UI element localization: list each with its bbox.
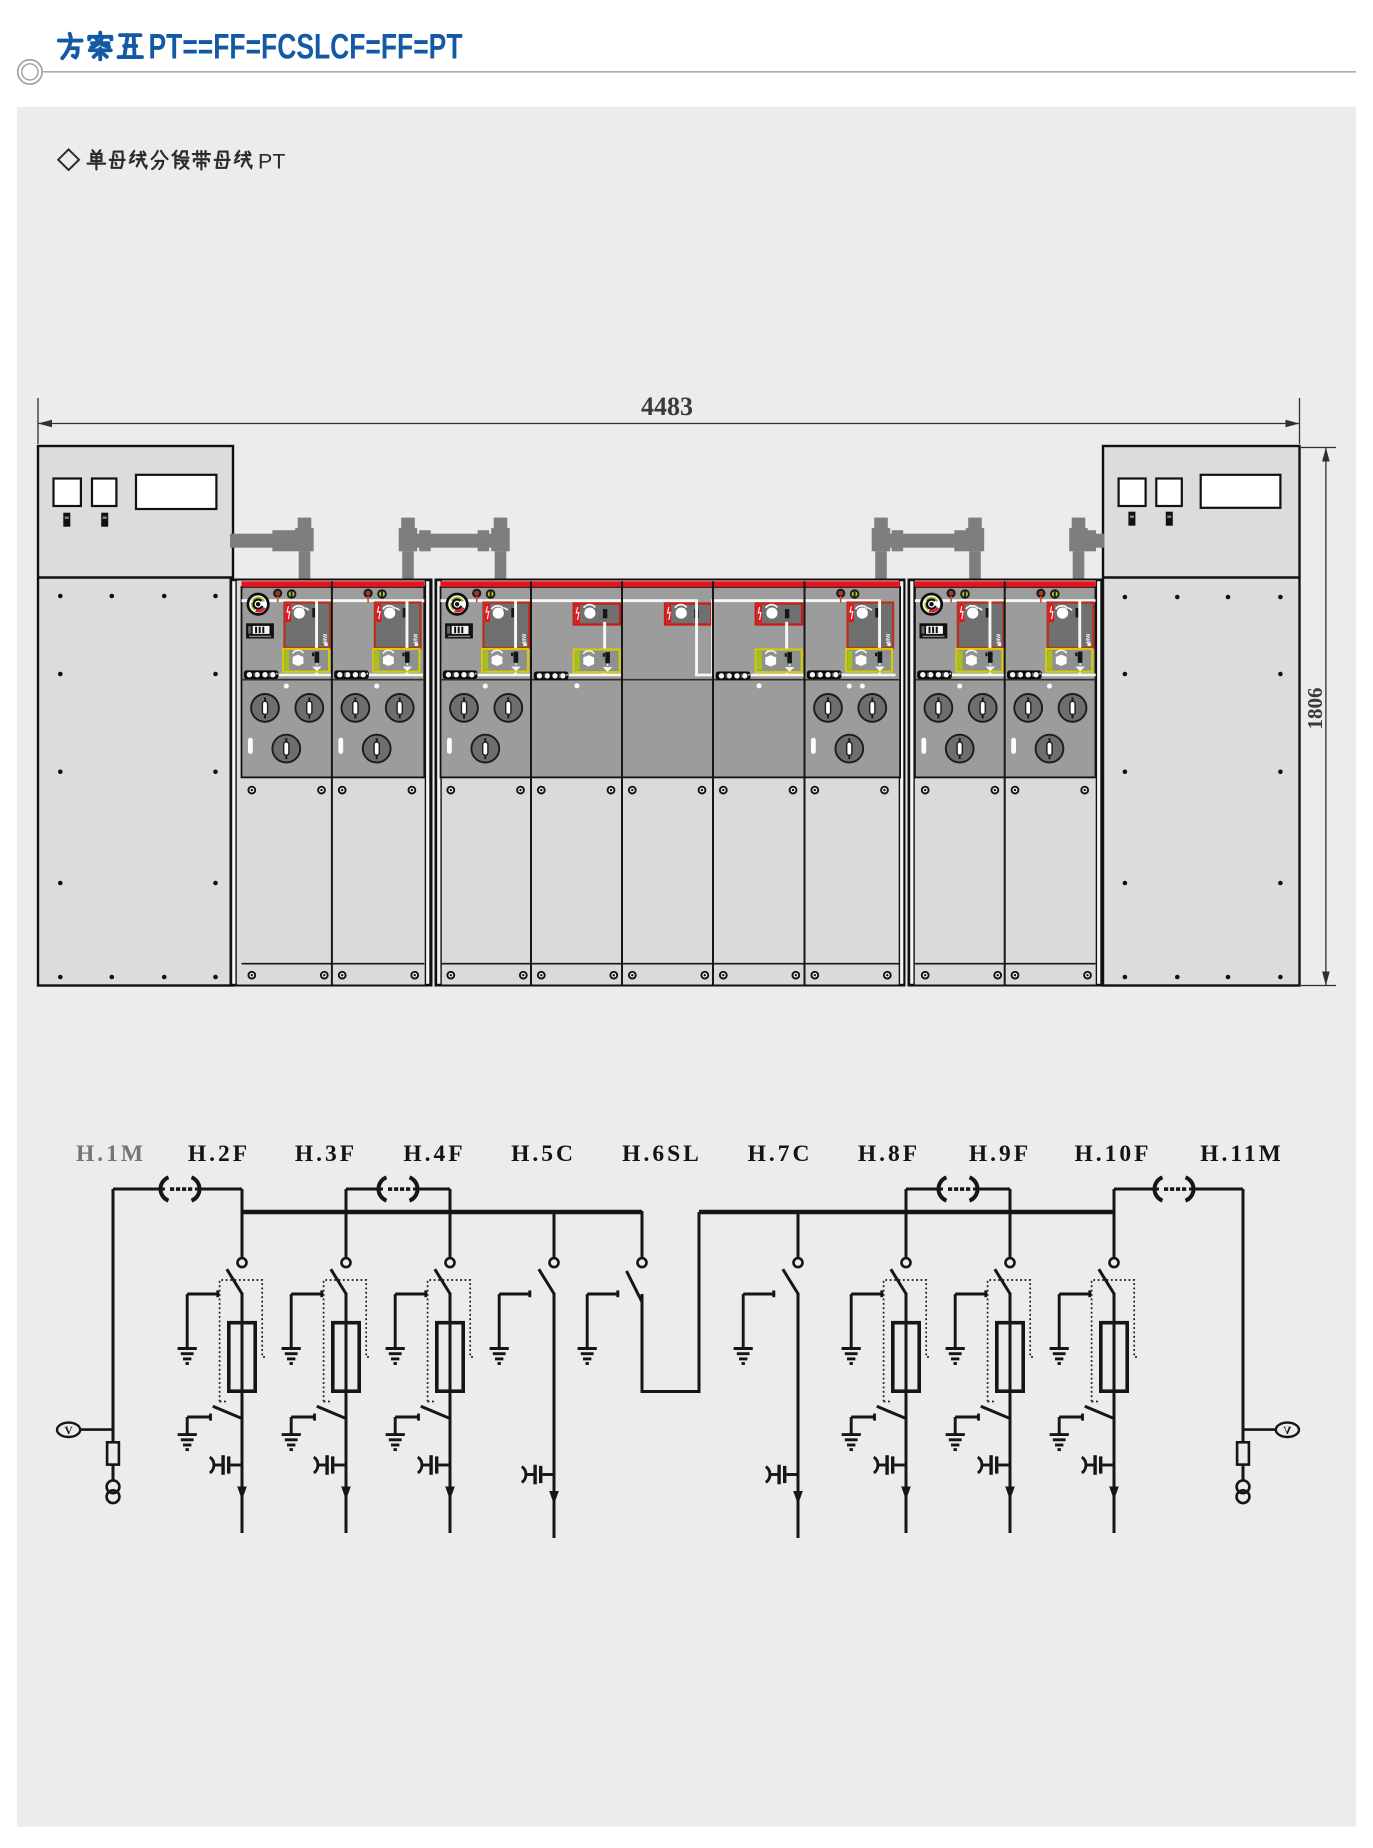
svg-text:PT==FF=FCSLCF=FF=PT: PT==FF=FCSLCF=FF=PT: [149, 28, 463, 67]
svg-text:4483: 4483: [641, 392, 693, 421]
svg-text:H.8F: H.8F: [858, 1141, 920, 1167]
svg-text:H.4F: H.4F: [403, 1141, 465, 1167]
svg-text:H.6SL: H.6SL: [622, 1141, 702, 1167]
svg-text:H.1M: H.1M: [76, 1141, 146, 1167]
svg-text:H.3F: H.3F: [295, 1141, 357, 1167]
svg-text:H.7C: H.7C: [748, 1141, 813, 1167]
svg-text:H.9F: H.9F: [969, 1141, 1031, 1167]
svg-text:H.5C: H.5C: [511, 1141, 576, 1167]
svg-text:H.10F: H.10F: [1074, 1141, 1151, 1167]
svg-text:H.2F: H.2F: [188, 1141, 250, 1167]
svg-text:PT: PT: [258, 150, 285, 174]
svg-text:1806: 1806: [1303, 688, 1327, 730]
svg-text:H.11M: H.11M: [1200, 1141, 1284, 1167]
